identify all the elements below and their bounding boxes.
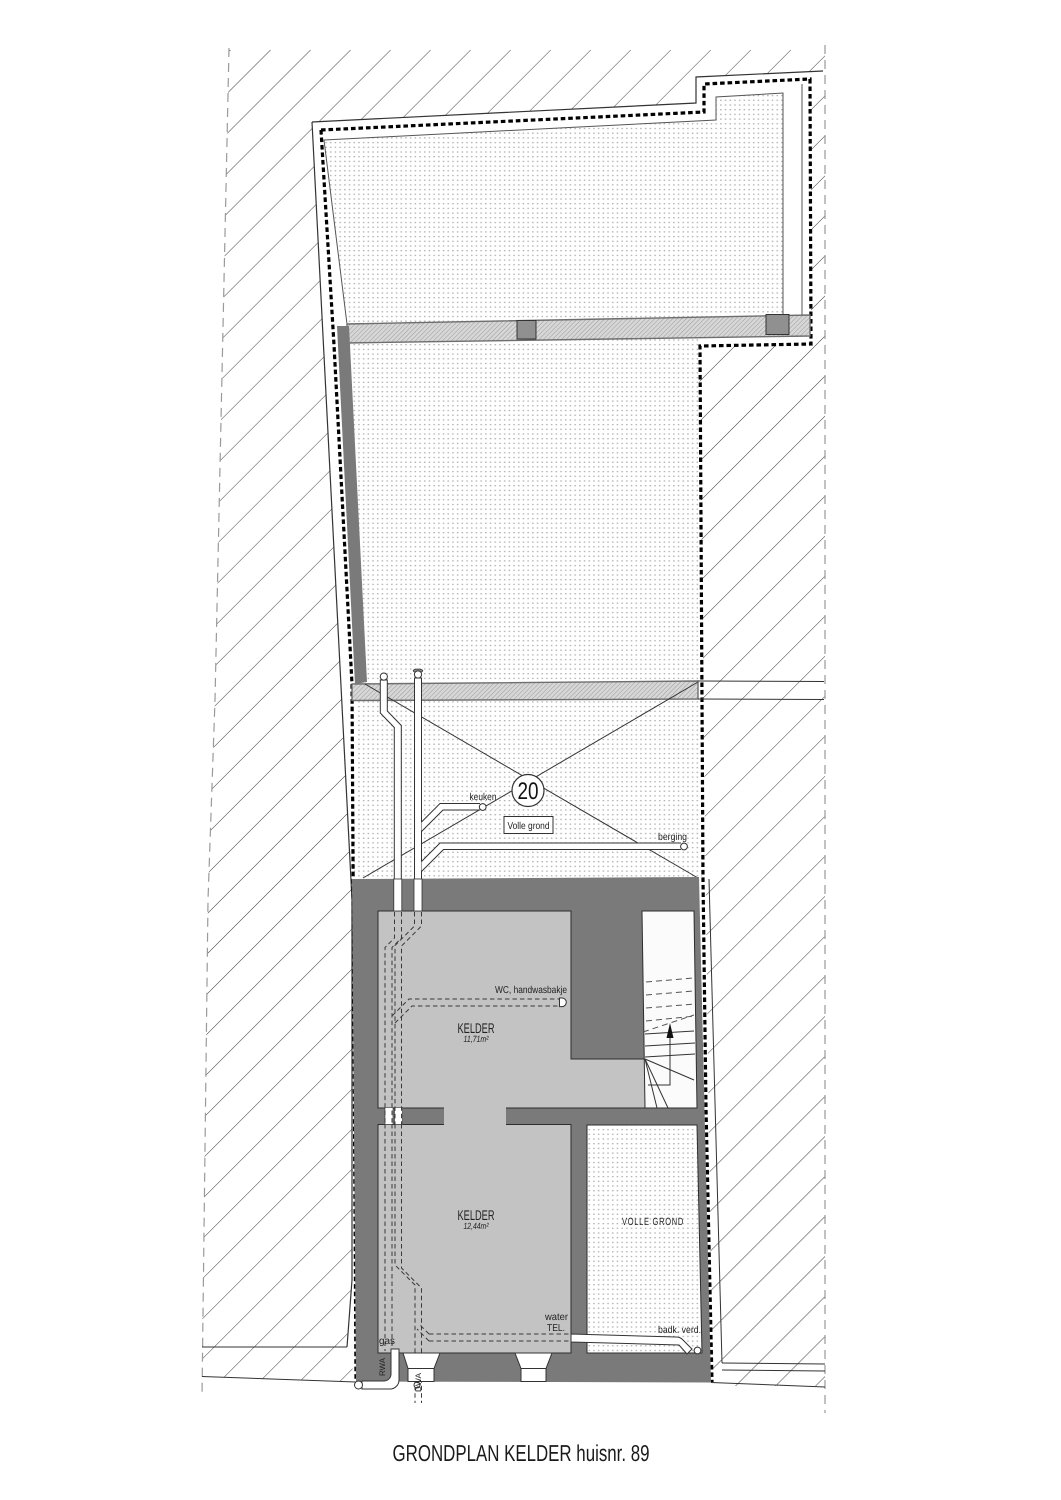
svg-text:gas: gas <box>379 1336 395 1347</box>
svg-text:11,71m²: 11,71m² <box>464 1034 490 1044</box>
svg-text:VOLLE GROND: VOLLE GROND <box>622 1216 684 1228</box>
svg-text:GRONDPLAN KELDER huisnr. 89: GRONDPLAN KELDER huisnr. 89 <box>393 1440 650 1466</box>
svg-text:berging: berging <box>658 832 687 843</box>
svg-text:12,44m²: 12,44m² <box>464 1221 490 1231</box>
svg-text:RWA: RWA <box>378 1357 387 1376</box>
svg-text:water: water <box>544 1312 569 1323</box>
svg-text:TEL.: TEL. <box>547 1323 565 1334</box>
svg-text:20: 20 <box>518 778 539 805</box>
svg-text:WC, handwasbakje: WC, handwasbakje <box>495 985 567 996</box>
svg-text:Volle grond: Volle grond <box>508 821 550 832</box>
svg-text:keuken: keuken <box>470 792 497 803</box>
svg-text:DWA: DWA <box>414 1372 423 1392</box>
svg-text:badk. verd.: badk. verd. <box>658 1325 701 1336</box>
